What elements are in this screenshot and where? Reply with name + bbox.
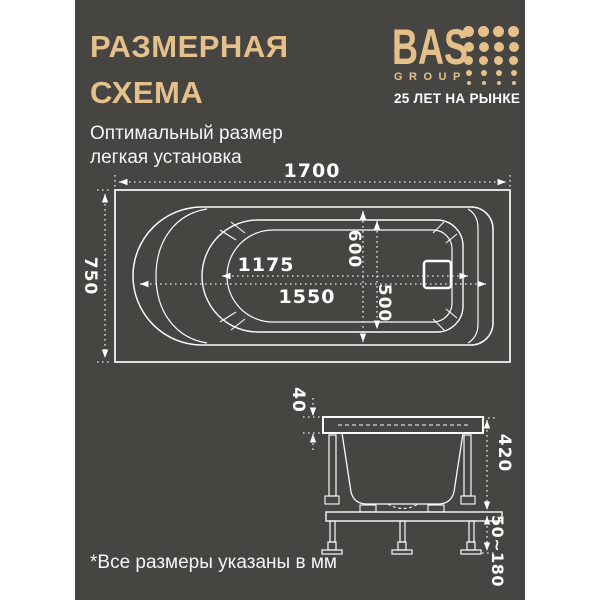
- dim-label-750: 750: [80, 257, 100, 296]
- dim-label-1175: 1175: [238, 254, 295, 276]
- drain-square: [424, 261, 451, 288]
- dim-label-1550: 1550: [279, 286, 336, 308]
- dim-label-40: 40: [288, 387, 308, 413]
- top-view-drawing: 1700 750 1175 1550 600 500: [80, 160, 510, 362]
- dim-label-500: 500: [374, 284, 394, 323]
- dim-label-1700: 1700: [284, 160, 341, 182]
- infographic-page: РАЗМЕРНАЯ СХЕМА BAS GROUP 25 ЛЕТ НА РЫНК…: [0, 0, 600, 600]
- dim-label-50-180: 50~180: [488, 515, 507, 587]
- dimension-diagram: 1700 750 1175 1550 600 500: [0, 0, 600, 600]
- units-footnote: *Все размеры указаны в мм: [90, 552, 337, 574]
- dim-label-420: 420: [494, 434, 514, 473]
- dim-label-600: 600: [344, 230, 364, 269]
